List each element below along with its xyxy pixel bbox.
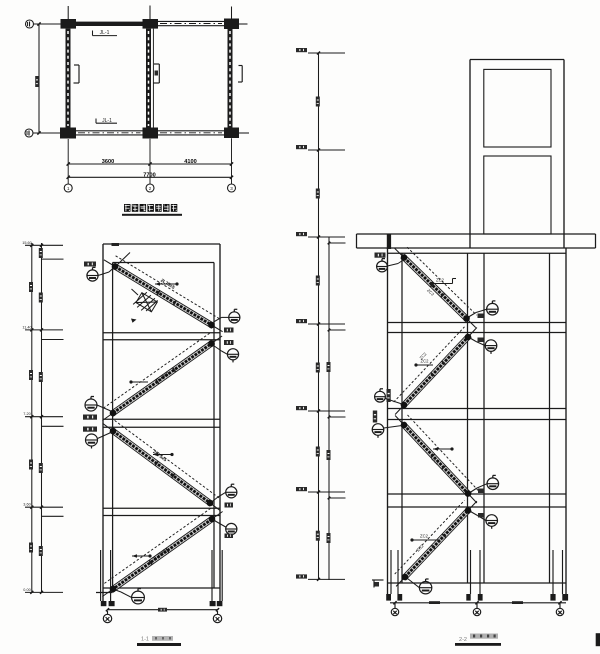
- svg-text:1-1: 1-1: [141, 637, 149, 643]
- svg-text:ZC2: ZC2: [436, 278, 445, 283]
- svg-text:15.60: 15.60: [22, 241, 32, 245]
- svg-text:4100: 4100: [184, 159, 196, 165]
- svg-text:7700: 7700: [143, 173, 155, 179]
- svg-text:7.20: 7.20: [23, 412, 30, 416]
- svg-text:ZC2: ZC2: [420, 534, 429, 539]
- svg-text:3600: 3600: [102, 159, 114, 165]
- svg-text:0.00: 0.00: [23, 588, 30, 592]
- svg-text:11.40: 11.40: [22, 325, 31, 329]
- svg-text:2-2: 2-2: [459, 637, 467, 643]
- svg-text:3.60: 3.60: [23, 503, 30, 507]
